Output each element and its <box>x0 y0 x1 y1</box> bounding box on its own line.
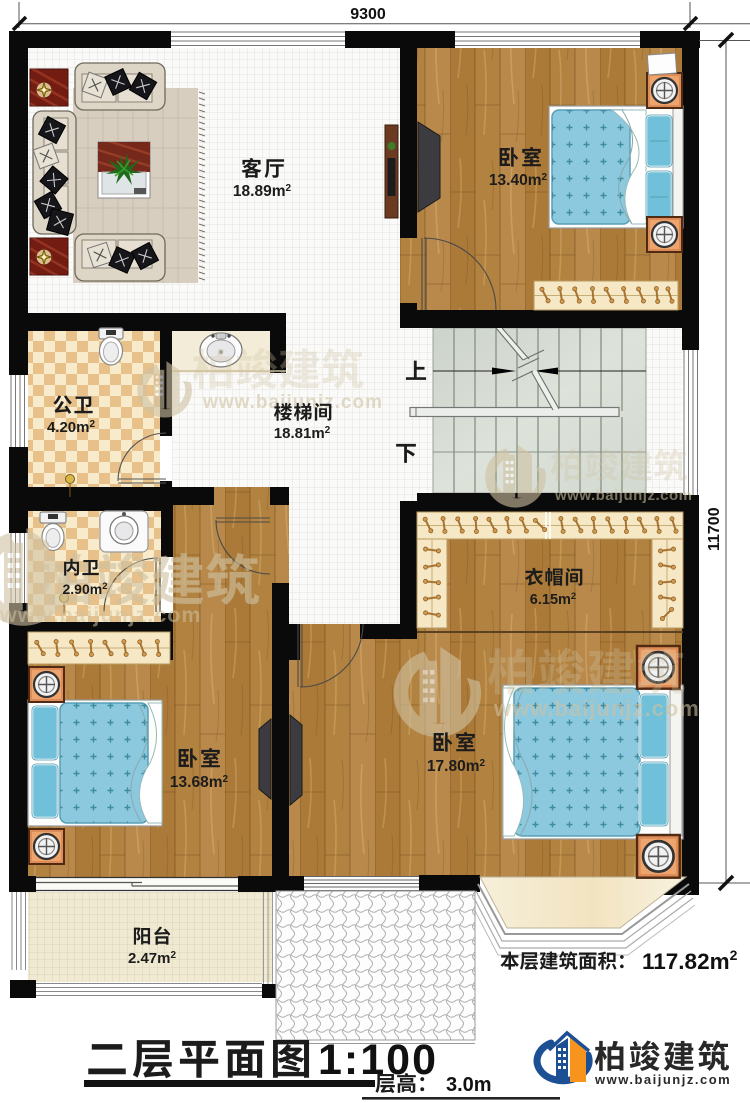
svg-text:117.82m2: 117.82m2 <box>642 947 738 974</box>
svg-text:2.90m2: 2.90m2 <box>63 581 108 597</box>
svg-text:13.40m2: 13.40m2 <box>489 172 548 189</box>
svg-text:9300: 9300 <box>350 6 386 23</box>
svg-text:4.20m2: 4.20m2 <box>47 419 96 436</box>
svg-text:www.baijunjz.com: www.baijunjz.com <box>202 392 383 413</box>
svg-text:2.47m2: 2.47m2 <box>128 950 177 967</box>
svg-text:3.0m: 3.0m <box>446 1074 492 1096</box>
svg-text:www.baijunjz.com: www.baijunjz.com <box>493 696 700 721</box>
svg-text:www.baijunjz.com: www.baijunjz.com <box>594 1072 731 1087</box>
svg-text:18.89m2: 18.89m2 <box>233 183 292 200</box>
svg-text:www.baijunjz.com: www.baijunjz.com <box>0 603 202 627</box>
svg-text:13.68m2: 13.68m2 <box>170 774 229 791</box>
svg-text:11700: 11700 <box>706 507 723 551</box>
svg-text:www.baijunjz.com: www.baijunjz.com <box>554 487 692 504</box>
svg-text:6.15m2: 6.15m2 <box>530 591 576 608</box>
svg-text:18.81m2: 18.81m2 <box>274 425 331 442</box>
svg-text:17.80m2: 17.80m2 <box>427 758 486 775</box>
